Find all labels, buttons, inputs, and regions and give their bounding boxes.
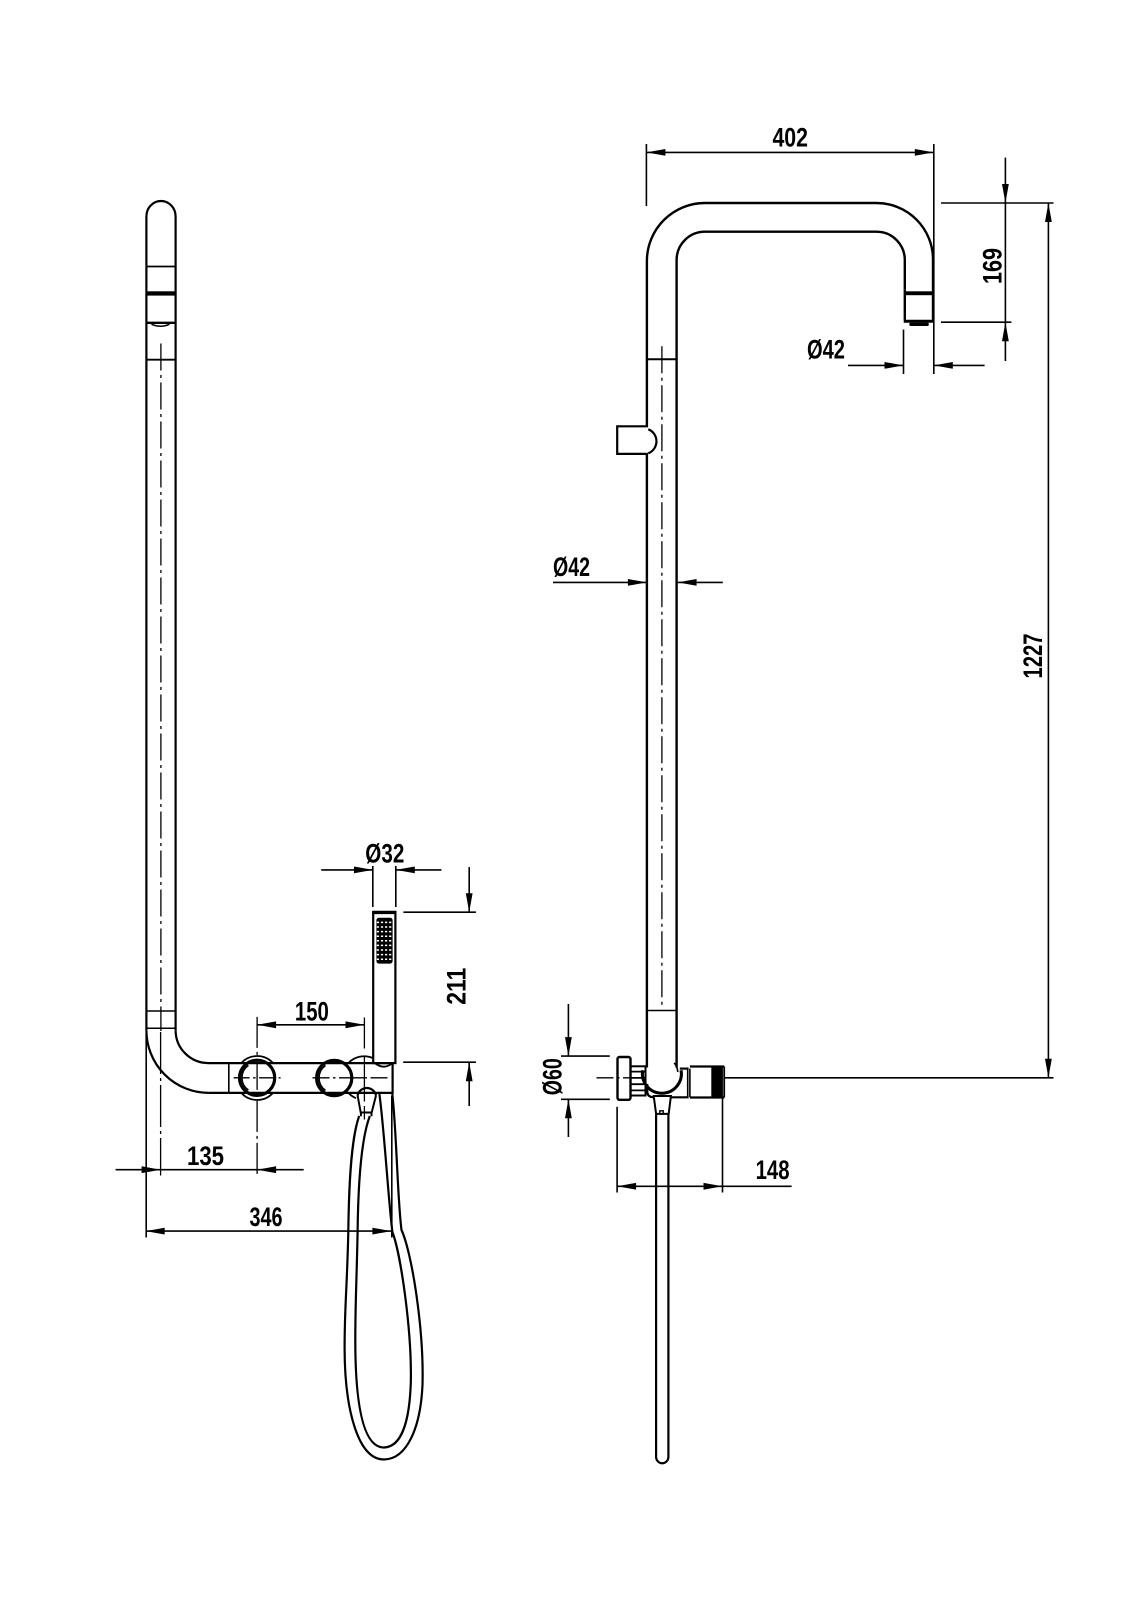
svg-text:Ø32: Ø32 bbox=[365, 839, 404, 869]
svg-text:150: 150 bbox=[295, 997, 329, 1027]
svg-text:1227: 1227 bbox=[1018, 634, 1048, 679]
svg-text:402: 402 bbox=[772, 123, 808, 153]
svg-text:Ø42: Ø42 bbox=[807, 335, 845, 365]
svg-text:148: 148 bbox=[756, 1155, 790, 1185]
svg-text:Ø42: Ø42 bbox=[553, 552, 590, 582]
svg-text:211: 211 bbox=[442, 968, 472, 1005]
svg-text:Ø60: Ø60 bbox=[538, 1058, 568, 1095]
svg-text:169: 169 bbox=[978, 248, 1008, 284]
svg-text:346: 346 bbox=[250, 1202, 283, 1232]
svg-text:135: 135 bbox=[187, 1141, 224, 1171]
